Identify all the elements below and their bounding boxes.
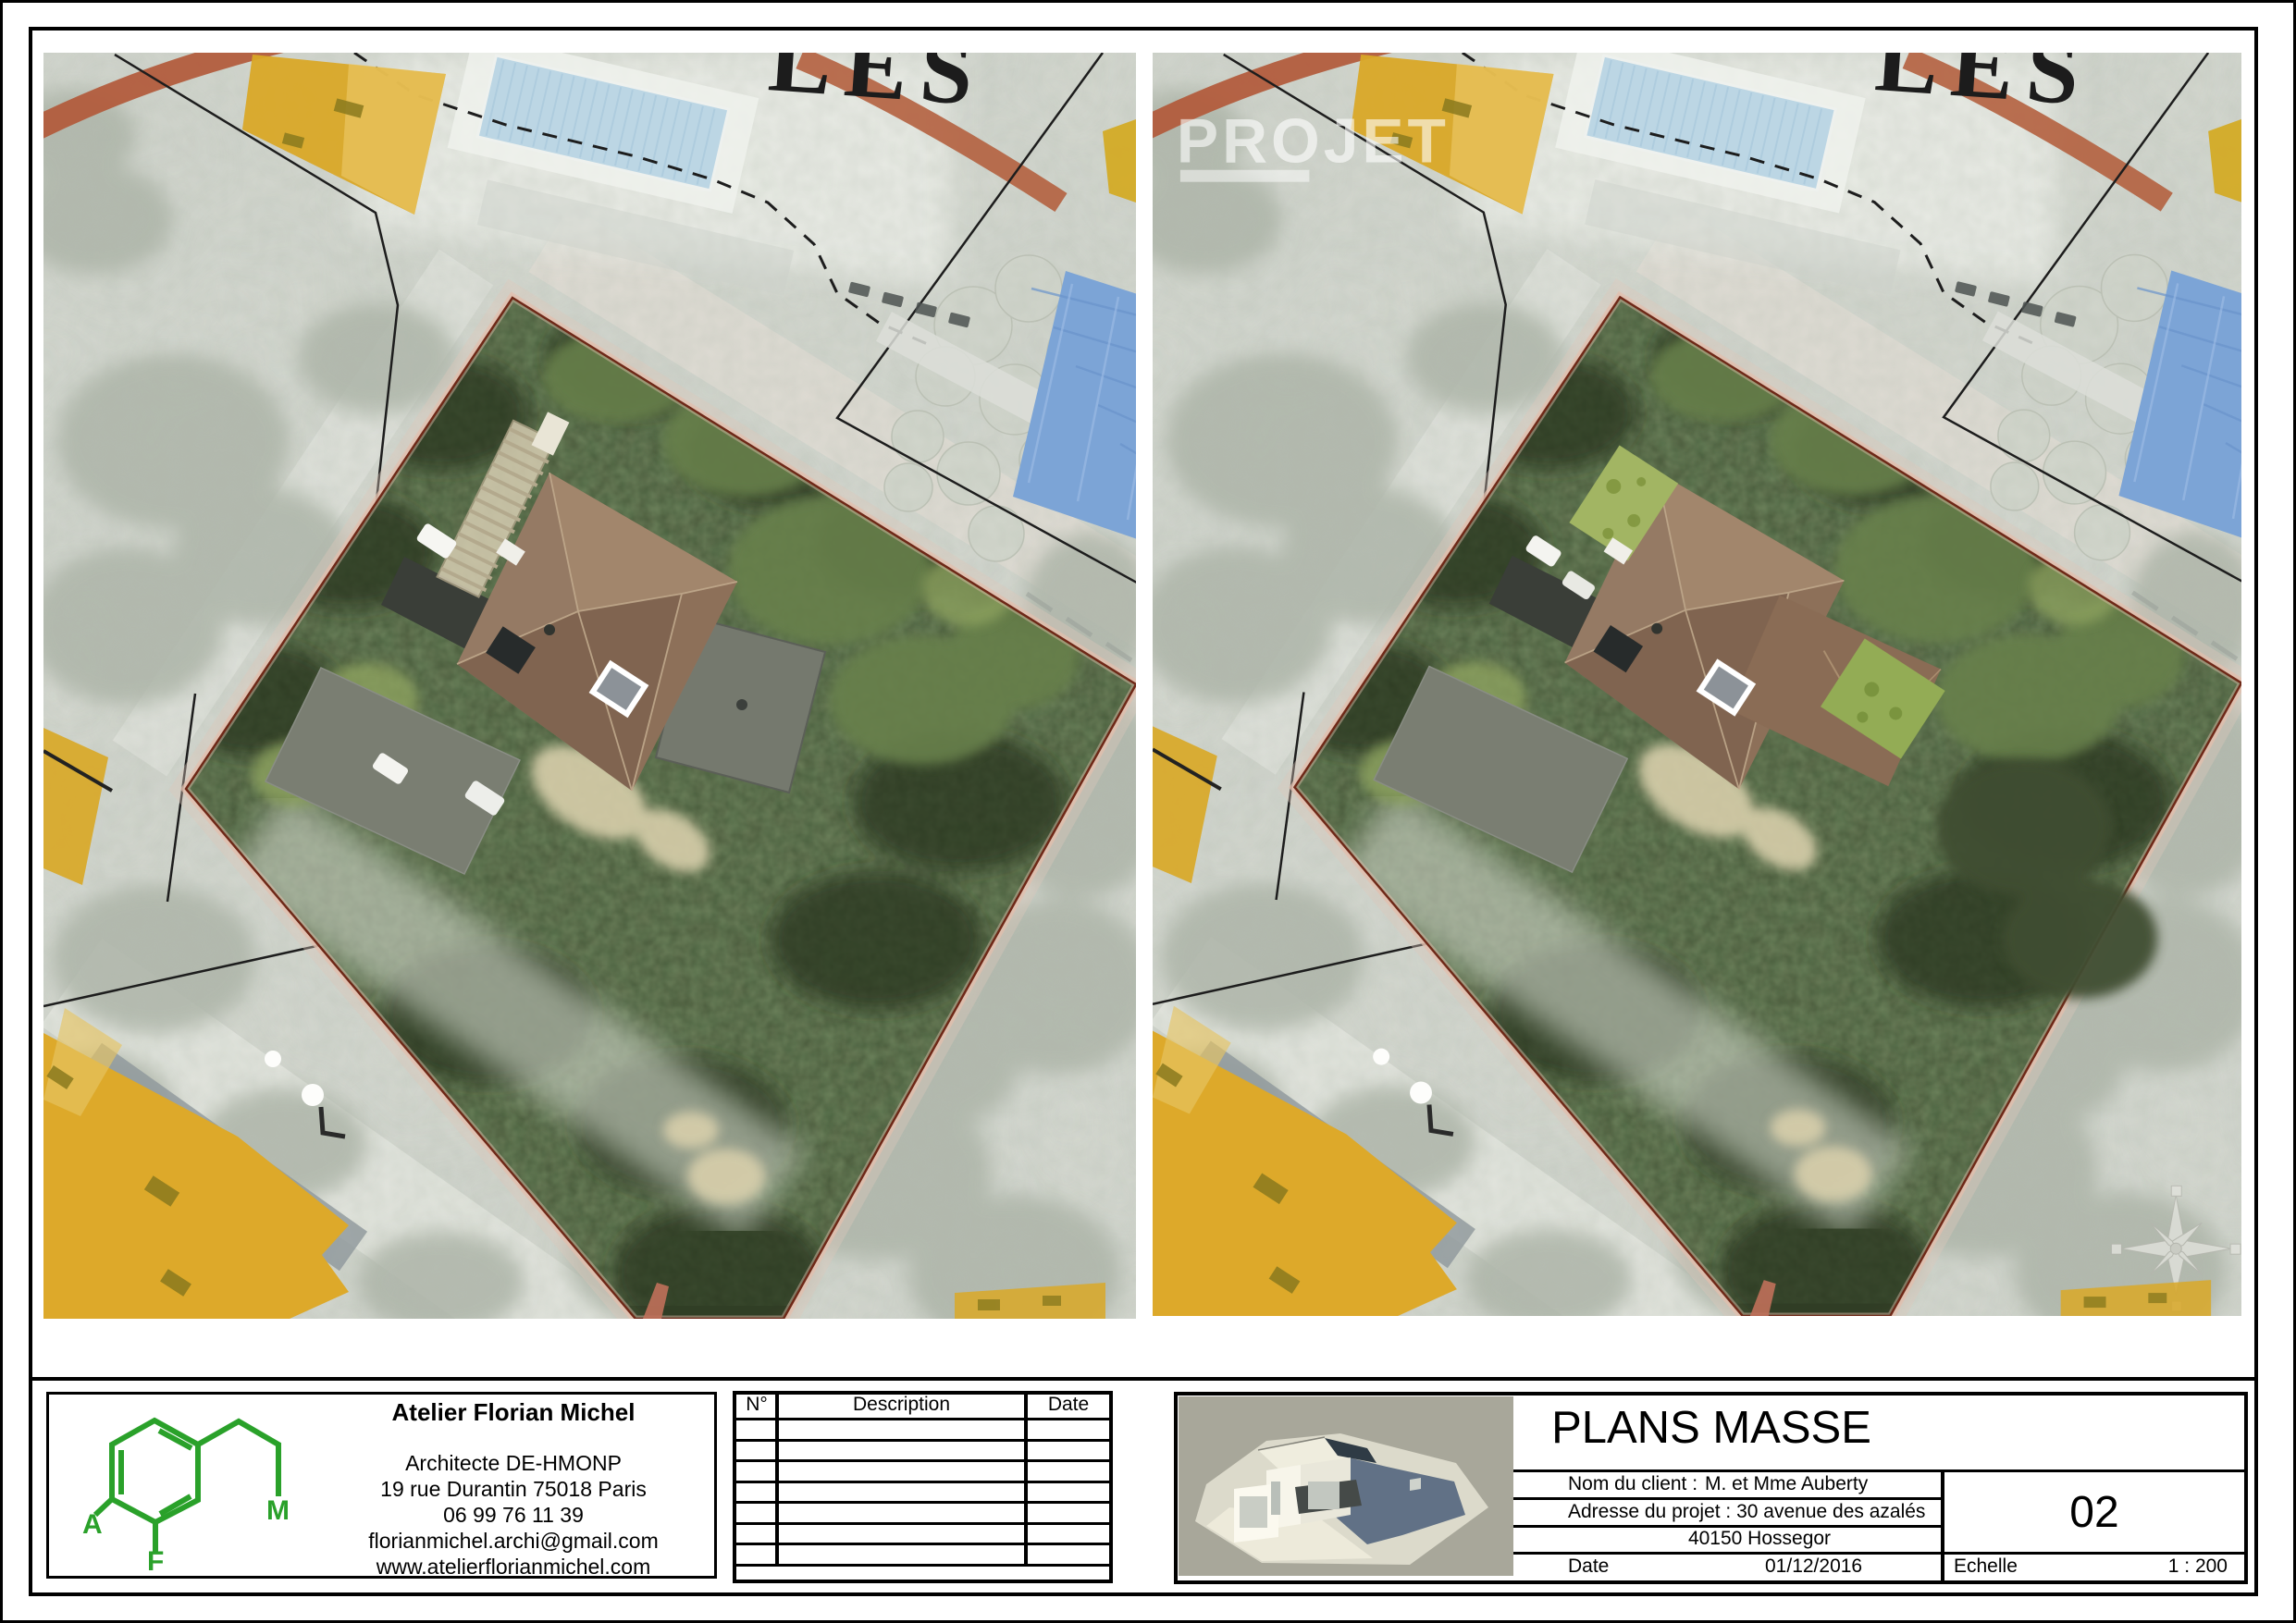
svg-text:F: F (147, 1546, 164, 1577)
svg-text:A: A (82, 1509, 103, 1540)
svg-text:PROJET: PROJET (1177, 107, 1450, 177)
svg-text:M: M (266, 1495, 290, 1526)
